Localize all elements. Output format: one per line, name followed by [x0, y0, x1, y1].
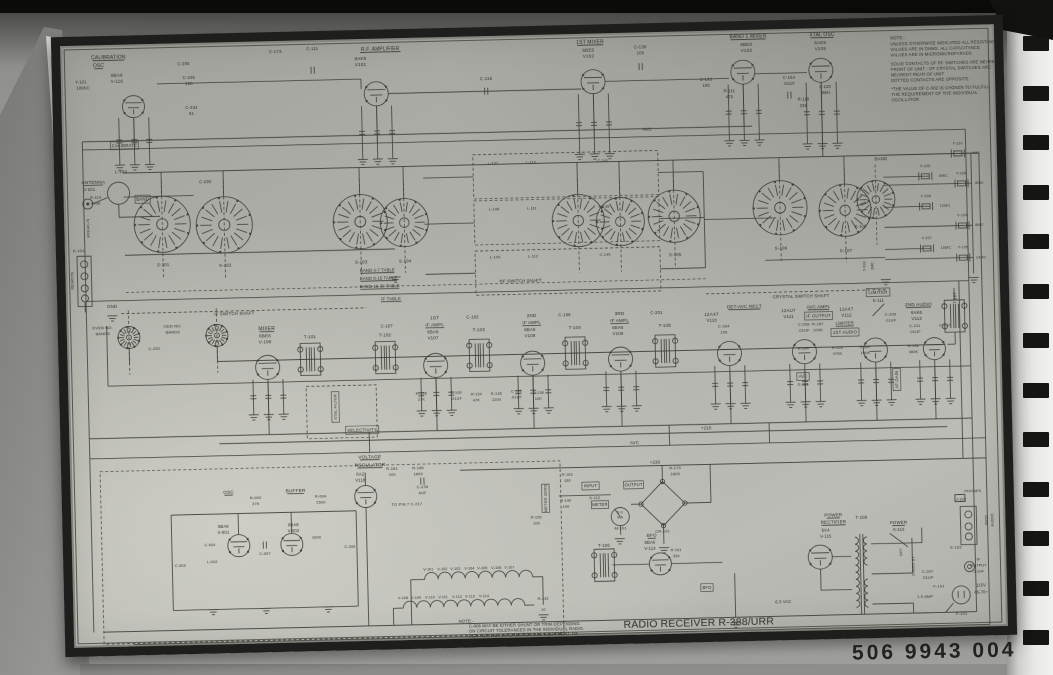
svg-text:V-106: V-106 [259, 339, 272, 344]
svg-text:IF AMPL: IF AMPL [610, 318, 629, 323]
svg-text:100: 100 [563, 505, 570, 509]
svg-text:DOTTED CONTACTS ARE OPPOSITE.: DOTTED CONTACTS ARE OPPOSITE. [891, 76, 970, 83]
svg-text:BAND 4-7 TABLE: BAND 4-7 TABLE [360, 267, 395, 273]
louver-slot [1023, 333, 1049, 348]
svg-text:100K: 100K [813, 327, 823, 332]
svg-text:1ST AUDIO: 1ST AUDIO [833, 329, 858, 335]
svg-text:10: 10 [541, 608, 546, 612]
svg-text:C-230: C-230 [148, 346, 160, 351]
svg-text:600Ω: 600Ω [983, 515, 988, 525]
svg-text:BFO: BFO [647, 533, 657, 538]
svg-text:V-001: V-001 [218, 530, 230, 535]
svg-text:C-187: C-187 [381, 323, 394, 328]
svg-text:L-107: L-107 [488, 161, 499, 165]
svg-text:10MC: 10MC [941, 246, 952, 250]
svg-text:LIMITER: LIMITER [836, 320, 854, 325]
svg-text:L-109: L-109 [490, 256, 501, 260]
svg-text:IF AMPL: IF AMPL [522, 320, 541, 325]
svg-text:AVC: AVC [642, 126, 652, 131]
svg-text:S-104: S-104 [399, 259, 412, 264]
svg-text:Y-101: Y-101 [75, 80, 87, 85]
svg-text:CRYSTAL SWITCH SHAFT: CRYSTAL SWITCH SHAFT [773, 293, 830, 299]
svg-text:2ND: 2ND [527, 313, 537, 318]
svg-text:R-173: R-173 [669, 465, 681, 470]
svg-text:6AK6: 6AK6 [911, 310, 923, 315]
svg-text:C-007: C-007 [259, 551, 271, 556]
svg-text:CR-101: CR-101 [655, 528, 670, 533]
svg-text:27K: 27K [418, 398, 426, 402]
svg-text:S-113: S-113 [893, 527, 905, 532]
svg-text:V118: V118 [355, 477, 366, 482]
svg-text:Y-109: Y-109 [920, 164, 931, 168]
svg-text:R-153: R-153 [832, 346, 843, 350]
svg-text:6BA6: 6BA6 [612, 325, 624, 330]
svg-text:RADIO RECEIVER R-388/URR: RADIO RECEIVER R-388/URR [623, 615, 774, 631]
svg-text:115V: 115V [976, 582, 986, 587]
svg-text:V110: V110 [706, 318, 717, 323]
svg-text:V-110: V-110 [425, 595, 435, 599]
svg-text:VALUES ARE IN MICROMICROFARADS: VALUES ARE IN MICROMICROFARADS [890, 51, 971, 58]
svg-text:C-149: C-149 [600, 253, 611, 257]
svg-text:100: 100 [702, 83, 710, 88]
svg-text:BFO: BFO [702, 585, 712, 590]
svg-text:V108: V108 [525, 333, 536, 338]
svg-text:MA: MA [617, 516, 623, 520]
svg-text:IF OUTPUT: IF OUTPUT [806, 313, 831, 319]
svg-text:100K: 100K [861, 351, 871, 355]
svg-text:L-112: L-112 [528, 255, 538, 259]
svg-text:BANDS: BANDS [96, 331, 111, 336]
svg-text:V-111: V-111 [438, 595, 448, 599]
svg-text:C-207: C-207 [922, 568, 934, 573]
svg-text:V107: V107 [428, 335, 439, 340]
svg-text:100KC: 100KC [76, 86, 90, 91]
svg-text:CALIBRATE: CALIBRATE [112, 143, 138, 149]
svg-text:C-164: C-164 [783, 75, 796, 80]
svg-text:J-101: J-101 [84, 187, 96, 192]
svg-text:C-234: C-234 [185, 105, 198, 110]
svg-text:L-002: L-002 [207, 560, 218, 564]
svg-text:L-108: L-108 [489, 207, 500, 211]
louver-slot [1023, 284, 1049, 299]
svg-text:C-138: C-138 [634, 44, 647, 49]
louver-slot [1023, 135, 1049, 150]
svg-text:Y-105: Y-105 [958, 245, 969, 249]
svg-text:R-142: R-142 [538, 597, 549, 601]
svg-text:6AK5: 6AK5 [814, 40, 826, 45]
svg-text:3000: 3000 [312, 536, 321, 540]
svg-text:6BA6: 6BA6 [288, 522, 299, 527]
svg-text:C-201: C-201 [650, 310, 663, 315]
svg-text:R-196: R-196 [908, 344, 919, 348]
svg-text:51: 51 [189, 111, 195, 116]
svg-text:T-108: T-108 [855, 515, 867, 520]
svg-text:C-190: C-190 [451, 391, 462, 395]
svg-text:360K: 360K [909, 350, 919, 354]
svg-text:V105: V105 [815, 46, 827, 51]
svg-text:LIMITER: LIMITER [868, 290, 888, 295]
svg-text:S-108: S-108 [854, 224, 867, 229]
svg-text:6BA6: 6BA6 [427, 329, 439, 334]
svg-text:V-002: V-002 [288, 528, 300, 533]
louver-slot [1023, 531, 1049, 546]
svg-text:NOTE:-: NOTE:- [890, 35, 906, 40]
svg-text:C-212: C-212 [939, 322, 951, 327]
photo-scene: CALIBRATIONOSCY-101100KC6BA6V-116CALIBRA… [0, 0, 1053, 675]
svg-text:0-1: 0-1 [617, 511, 623, 515]
svg-text:AVC: AVC [799, 374, 808, 379]
svg-text:INPUT: INPUT [584, 483, 598, 488]
svg-text:Y-104: Y-104 [957, 213, 968, 217]
svg-text:6BE6: 6BE6 [740, 42, 752, 47]
svg-text:Y-107: Y-107 [921, 236, 932, 240]
svg-text:C-192: C-192 [466, 314, 479, 319]
svg-text:R-128: R-128 [416, 392, 427, 396]
svg-text:OSCILLATOR.: OSCILLATOR. [891, 97, 920, 103]
louver-slot [1023, 86, 1049, 101]
svg-text:S-105: S-105 [669, 252, 682, 257]
svg-text:6BA6: 6BA6 [111, 73, 123, 78]
svg-text:.01UF: .01UF [451, 397, 463, 401]
svg-text:V-114: V-114 [644, 546, 656, 551]
svg-text:T-103: T-103 [473, 327, 486, 332]
svg-text:T-101: T-101 [304, 334, 317, 339]
svg-text:.01UF: .01UF [909, 329, 921, 334]
svg-text:M-101: M-101 [614, 526, 627, 531]
svg-text:AF GAIN: AF GAIN [894, 371, 899, 389]
svg-text:C-145: C-145 [598, 205, 609, 209]
svg-text:REMOTE: REMOTE [69, 271, 74, 289]
svg-text:R-111: R-111 [723, 88, 735, 93]
svg-text:OUTPUT: OUTPUT [970, 563, 987, 567]
svg-text:12AX7: 12AX7 [839, 306, 853, 311]
background-top-strip [0, 0, 1053, 13]
svg-text:Y-110: Y-110 [952, 141, 962, 145]
svg-text:V-114: V-114 [479, 594, 489, 598]
svg-text:6UF: 6UF [419, 490, 428, 495]
svg-text:R-150: R-150 [531, 515, 542, 519]
svg-text:+215: +215 [701, 425, 712, 430]
svg-text:S-107: S-107 [840, 248, 853, 253]
svg-text:V101: V101 [355, 62, 367, 67]
svg-text:C-255: C-255 [177, 61, 190, 66]
svg-text:C-208: C-208 [798, 321, 810, 326]
svg-text:27K: 27K [252, 501, 260, 506]
louver-slot [1023, 185, 1049, 200]
svg-text:C-003: C-003 [175, 564, 186, 568]
svg-text:C-239: C-239 [417, 484, 429, 489]
svg-text:AVC: AVC [630, 440, 639, 445]
svg-text:R-119: R-119 [90, 195, 102, 200]
svg-text:TO PIN 7 C-217: TO PIN 7 C-217 [392, 501, 423, 507]
svg-text:V-112: V-112 [452, 595, 462, 599]
svg-text:S-102: S-102 [219, 263, 232, 268]
svg-text:T-106: T-106 [598, 543, 610, 548]
svg-text:+230: +230 [650, 459, 661, 464]
svg-text:OUTPUT: OUTPUT [624, 482, 642, 487]
svg-text:R-134: R-134 [471, 392, 482, 396]
svg-text:ODD NO.: ODD NO. [164, 323, 182, 328]
svg-text:V-105: V-105 [477, 566, 487, 570]
svg-text:V113: V113 [911, 316, 922, 321]
svg-text:POWER: POWER [824, 512, 843, 517]
svg-text:E-102: E-102 [950, 545, 962, 550]
svg-text:12AU7: 12AU7 [781, 308, 796, 313]
svg-text:METER: METER [592, 502, 608, 507]
svg-text:3RD: 3RD [615, 311, 625, 316]
svg-text:1.5 AMP: 1.5 AMP [917, 594, 933, 599]
svg-text:J-102: J-102 [956, 496, 967, 501]
svg-text:6BE6: 6BE6 [259, 333, 271, 338]
svg-text:OFF: OFF [899, 548, 903, 557]
svg-text:GND: GND [107, 304, 117, 309]
svg-text:45-70~: 45-70~ [974, 589, 989, 594]
svg-text:.01UF: .01UF [511, 395, 523, 399]
svg-text:6MC: 6MC [939, 174, 948, 178]
svg-text:L-120: L-120 [819, 84, 831, 89]
svg-text:.01UF: .01UF [798, 327, 810, 332]
svg-text:V102: V102 [583, 54, 595, 59]
svg-text:C-230: C-230 [199, 179, 212, 184]
svg-text:R-002: R-002 [250, 495, 262, 500]
svg-text:6.3 VAC: 6.3 VAC [775, 599, 791, 604]
svg-text:100: 100 [185, 81, 193, 86]
svg-text:J-104: J-104 [974, 569, 984, 573]
svg-text:10K: 10K [535, 397, 543, 401]
svg-text:STAND BY: STAND BY [911, 556, 915, 576]
svg-text:8MC: 8MC [975, 223, 984, 227]
svg-text:C-204: C-204 [718, 323, 730, 328]
svg-text:Y-102: Y-102 [862, 261, 866, 271]
svg-text:POWER: POWER [890, 520, 907, 525]
svg-text:6BE6: 6BE6 [582, 48, 594, 53]
svg-text:V112: V112 [841, 312, 852, 317]
svg-text:PHONES: PHONES [964, 489, 981, 493]
svg-text:IF TABLE: IF TABLE [381, 296, 401, 301]
svg-text:2MC: 2MC [870, 261, 874, 269]
svg-text:C-196: C-196 [558, 312, 571, 317]
svg-text:1500: 1500 [316, 499, 326, 504]
lid-under-rail [80, 664, 1053, 675]
svg-text:470: 470 [726, 94, 734, 99]
svg-text:T-104: T-104 [569, 325, 582, 330]
svg-text:R-135: R-135 [491, 392, 502, 396]
svg-text:IF SWITCH SHAFT: IF SWITCH SHAFT [214, 310, 255, 316]
svg-text:METER ZERO: METER ZERO [543, 484, 549, 512]
svg-text:BANDS: BANDS [165, 329, 180, 334]
svg-text:T-102: T-102 [379, 332, 392, 337]
svg-text:SELECTIVITY: SELECTIVITY [347, 427, 377, 433]
louver-slot [1023, 432, 1049, 447]
svg-text:DET-AVC RECT: DET-AVC RECT [727, 304, 762, 310]
svg-text:R-138: R-138 [533, 391, 544, 395]
louver-slot [1023, 482, 1049, 497]
svg-text:S-106: S-106 [775, 246, 788, 251]
schematic-svg: CALIBRATIONOSCY-101100KC6BA6V-116CALIBRA… [60, 24, 1008, 648]
svg-text:14MC: 14MC [976, 255, 987, 259]
svg-text:S-101: S-101 [157, 262, 170, 267]
louver-slot [1023, 581, 1049, 596]
svg-text:.01UF: .01UF [885, 317, 897, 322]
svg-text:AVC AMPL: AVC AMPL [806, 304, 830, 310]
svg-text:V-103: V-103 [450, 567, 460, 571]
svg-text:T-107: T-107 [952, 292, 957, 304]
svg-text:180: 180 [564, 479, 571, 483]
svg-text:L-110: L-110 [526, 160, 536, 164]
svg-text:R-116: R-116 [798, 97, 810, 102]
svg-text:470K: 470K [833, 352, 843, 356]
svg-text:S-111: S-111 [873, 298, 885, 303]
svg-text:F-101: F-101 [933, 583, 945, 588]
svg-text:R-004: R-004 [315, 493, 327, 498]
svg-text:C-235: C-235 [183, 75, 196, 80]
svg-text:IF: IF [976, 557, 980, 561]
svg-text:V-109: V-109 [411, 596, 421, 600]
louver-slot [1023, 234, 1049, 249]
svg-text:33K: 33K [800, 103, 808, 108]
svg-text:V-108: V-108 [398, 596, 408, 600]
svg-text:V109: V109 [612, 331, 623, 336]
svg-text:RECTIFIER: RECTIFIER [821, 519, 847, 525]
svg-text:S-112: S-112 [589, 495, 601, 500]
svg-text:100: 100 [389, 472, 397, 477]
svg-text:6BA6: 6BA6 [524, 327, 536, 332]
svg-text:R-187: R-187 [860, 345, 871, 349]
svg-text:2200: 2200 [492, 398, 501, 402]
svg-text:BAND: BAND [136, 197, 149, 202]
svg-text:V-104: V-104 [464, 566, 474, 570]
svg-text:THE REQUIREMENT OF THE INDIVID: THE REQUIREMENT OF THE INDIVIDUAL [891, 90, 978, 97]
svg-text:C-173: C-173 [269, 49, 282, 54]
svg-text:1800: 1800 [670, 471, 680, 476]
svg-text:3MH: 3MH [821, 90, 830, 95]
svg-text:8MC: 8MC [975, 181, 984, 185]
svg-text:0A2: 0A2 [356, 471, 365, 476]
svg-text:6BA6: 6BA6 [218, 524, 229, 529]
svg-text:C-193: C-193 [511, 389, 522, 393]
svg-text:R-184: R-184 [798, 347, 809, 351]
svg-text:V-102: V-102 [437, 567, 447, 571]
svg-text:C-209: C-209 [885, 311, 897, 316]
svg-text:IF AMPL: IF AMPL [425, 322, 444, 327]
svg-text:R-181: R-181 [386, 466, 398, 471]
svg-text:C-211: C-211 [909, 323, 921, 328]
svg-text:BREAK-IN: BREAK-IN [86, 218, 90, 237]
svg-text:V-116: V-116 [111, 79, 124, 84]
svg-text:.01UF: .01UF [783, 81, 796, 86]
svg-text:6BA6: 6BA6 [644, 540, 655, 545]
svg-text:C-111: C-111 [306, 46, 319, 51]
svg-text:470K: 470K [91, 201, 101, 206]
svg-text:.01UF: .01UF [922, 574, 934, 579]
svg-text:T-105: T-105 [658, 323, 671, 328]
svg-text:C-006: C-006 [344, 545, 355, 549]
svg-text:S-115: S-115 [798, 382, 810, 387]
svg-text:RF SWITCH SHAFT: RF SWITCH SHAFT [500, 278, 542, 284]
svg-text:L-104: L-104 [115, 169, 127, 174]
svg-text:Y-106: Y-106 [921, 194, 932, 198]
svg-text:R-167: R-167 [812, 321, 824, 326]
svg-text:V-107: V-107 [504, 565, 514, 569]
louver-slot [1023, 630, 1049, 645]
svg-text:BAND 16-30 TABLE: BAND 16-30 TABLE [360, 283, 400, 289]
svg-text:L-111: L-111 [527, 206, 537, 210]
svg-text:XTAL FILTER: XTAL FILTER [332, 394, 338, 420]
svg-text:12MC: 12MC [940, 204, 951, 208]
svg-text:5V4: 5V4 [822, 528, 831, 533]
svg-text:Y-108: Y-108 [956, 171, 967, 175]
svg-text:V103: V103 [741, 48, 753, 53]
svg-text:V-101: V-101 [423, 567, 433, 571]
svg-text:V-113: V-113 [465, 594, 475, 598]
svg-text:100: 100 [720, 329, 728, 334]
svg-text:R-163: R-163 [562, 473, 573, 477]
svg-text:S-103: S-103 [355, 260, 368, 265]
svg-text:100: 100 [637, 50, 645, 55]
svg-text:BAND: BAND [874, 156, 887, 161]
svg-text:334: 334 [673, 554, 680, 558]
svg-text:BAND 8-15 TABLE: BAND 8-15 TABLE [360, 275, 398, 281]
part-number-stamp: 506 9943 004 [852, 638, 1017, 665]
svg-text:12AX7: 12AX7 [704, 312, 719, 317]
svg-text:R-140: R-140 [560, 499, 571, 503]
schematic-plate: CALIBRATIONOSCY-101100KC6BA6V-116CALIBRA… [51, 15, 1017, 657]
svg-text:P-101: P-101 [956, 611, 968, 616]
svg-text:4MC: 4MC [972, 151, 981, 155]
svg-text:C-141: C-141 [597, 159, 608, 163]
svg-text:V111: V111 [783, 314, 794, 319]
svg-text:C-143: C-143 [700, 77, 713, 82]
svg-text:E-101: E-101 [73, 248, 85, 253]
svg-text:C-116: C-116 [480, 76, 493, 81]
svg-text:EVEN NO.: EVEN NO. [92, 325, 112, 330]
svg-text:C-004: C-004 [204, 543, 215, 547]
svg-text:R-185: R-185 [412, 465, 424, 470]
svg-text:1800: 1800 [413, 471, 423, 476]
svg-text:47K: 47K [473, 398, 481, 402]
svg-text:AUDIO: AUDIO [989, 513, 994, 527]
louver-slot [1023, 383, 1049, 398]
svg-text:R-161: R-161 [671, 548, 682, 552]
svg-text:V-115: V-115 [820, 534, 832, 539]
svg-text:V-106: V-106 [491, 566, 501, 570]
svg-text:100: 100 [533, 522, 540, 526]
svg-text:6AK5: 6AK5 [354, 56, 366, 61]
svg-text:1ST: 1ST [430, 315, 439, 320]
